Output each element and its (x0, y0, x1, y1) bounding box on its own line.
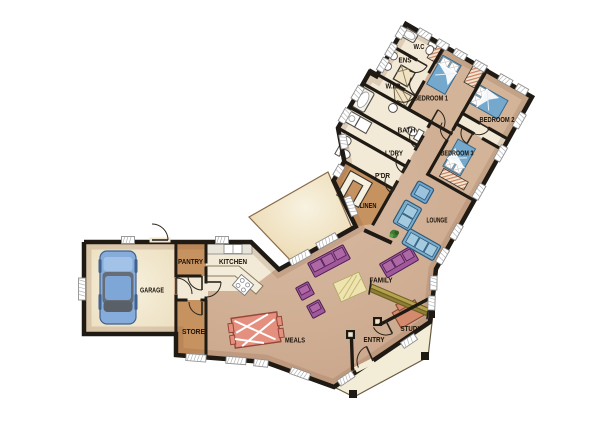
svg-text:MEALS: MEALS (285, 338, 305, 345)
svg-text:LINEN: LINEN (360, 203, 377, 210)
svg-text:STUDY: STUDY (401, 326, 422, 333)
svg-text:FAMILY: FAMILY (370, 278, 393, 285)
svg-text:L'DRY: L'DRY (385, 151, 403, 158)
svg-text:KITCHEN: KITCHEN (219, 259, 247, 266)
svg-text:BATH: BATH (398, 128, 416, 135)
svg-text:ENTRY: ENTRY (364, 337, 385, 344)
svg-text:W.C: W.C (414, 44, 425, 51)
svg-text:LOUNGE: LOUNGE (427, 218, 448, 225)
svg-text:BEDROOM 1: BEDROOM 1 (414, 96, 448, 103)
svg-text:P'DR: P'DR (375, 173, 390, 180)
svg-text:STORE: STORE (182, 329, 205, 336)
svg-text:W.I.R: W.I.R (386, 84, 401, 91)
svg-text:PANTRY: PANTRY (178, 259, 203, 266)
svg-text:BEDROOM 2: BEDROOM 2 (480, 117, 515, 124)
svg-text:GARAGE: GARAGE (140, 288, 164, 295)
svg-text:BEDROOM 3: BEDROOM 3 (441, 150, 474, 157)
svg-text:ENS: ENS (399, 58, 412, 65)
